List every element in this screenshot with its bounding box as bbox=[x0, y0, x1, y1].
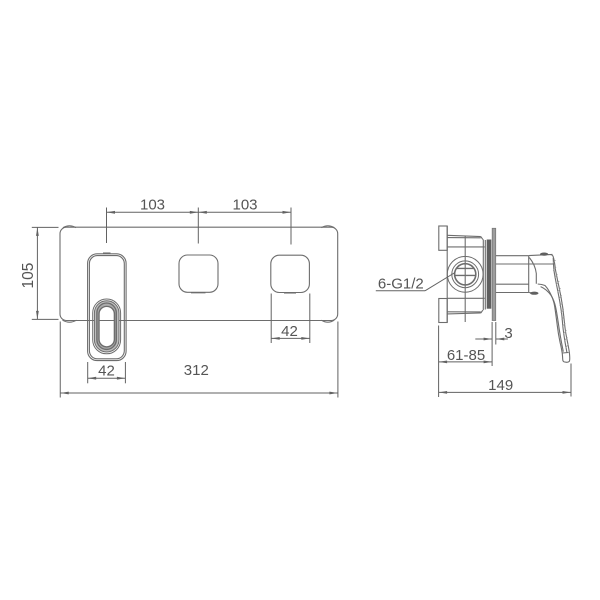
svg-text:3: 3 bbox=[504, 325, 512, 342]
svg-text:103: 103 bbox=[140, 196, 165, 213]
svg-text:42: 42 bbox=[98, 362, 115, 379]
svg-text:103: 103 bbox=[232, 196, 257, 213]
svg-text:149: 149 bbox=[488, 377, 513, 394]
svg-text:61-85: 61-85 bbox=[447, 347, 485, 364]
svg-text:42: 42 bbox=[281, 323, 298, 340]
svg-text:105: 105 bbox=[20, 263, 37, 289]
svg-text:312: 312 bbox=[184, 362, 209, 379]
svg-text:6-G1/2: 6-G1/2 bbox=[378, 275, 424, 292]
